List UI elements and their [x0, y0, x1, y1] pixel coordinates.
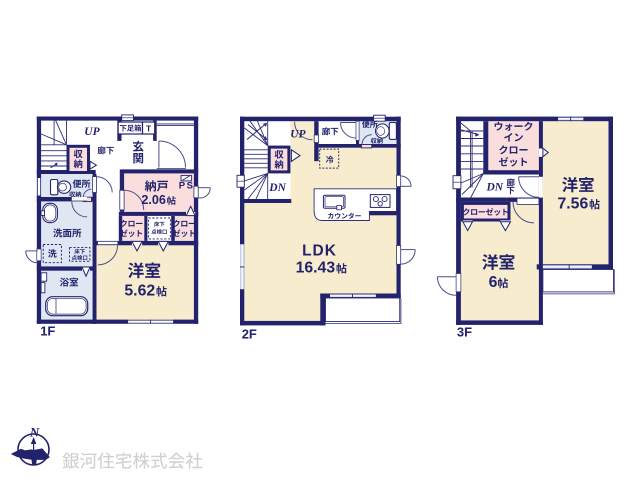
- svg-text:DN: DN: [486, 182, 504, 194]
- svg-text:2.06: 2.06: [141, 193, 166, 207]
- svg-text:7.56: 7.56: [558, 195, 589, 212]
- svg-text:1F: 1F: [40, 324, 55, 339]
- svg-text:6: 6: [489, 274, 498, 291]
- svg-text:5.62: 5.62: [124, 283, 155, 300]
- svg-text:2F: 2F: [242, 326, 257, 341]
- svg-text:DN: DN: [268, 182, 286, 194]
- svg-text:UP: UP: [290, 128, 306, 140]
- svg-text:3F: 3F: [457, 325, 472, 340]
- svg-text:T: T: [146, 123, 152, 133]
- svg-text:PS: PS: [179, 181, 195, 192]
- svg-text:N: N: [29, 424, 40, 439]
- svg-text:16.43: 16.43: [296, 260, 336, 277]
- svg-text:UP: UP: [84, 126, 100, 138]
- svg-text:LDK: LDK: [302, 242, 337, 259]
